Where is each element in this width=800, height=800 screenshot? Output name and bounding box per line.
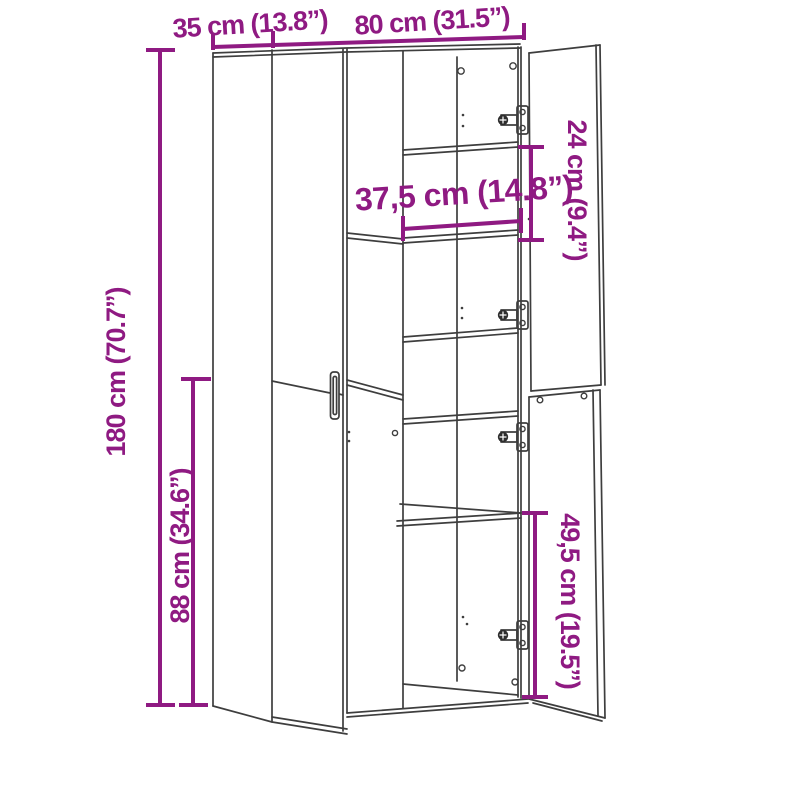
cabinet-line-art: [213, 44, 605, 734]
door-handle: [331, 372, 340, 419]
dimension-label-width: 80 cm (31.5”): [354, 1, 511, 40]
wardrobe-diagram-canvas: 35 cm (13.8”) 80 cm (31.5”) 180 cm (70.7…: [0, 0, 800, 800]
hinge-icon: [498, 621, 528, 649]
dimension-label-shelf-gap: 24 cm (9.4”): [562, 119, 592, 260]
hinge-icon: [498, 423, 528, 451]
dimension-label-lower-height: 88 cm (34.6”): [165, 468, 195, 623]
dimension-label-lower-section: 49,5 cm (19.5”): [555, 513, 585, 689]
fitting-holes: [348, 63, 587, 685]
dimension-left-lower: 88 cm (34.6”): [165, 379, 211, 705]
dimension-label-height: 180 cm (70.7”): [101, 287, 131, 456]
dimension-label-depth: 35 cm (13.8”): [172, 4, 329, 43]
dimension-lower-section: 49,5 cm (19.5”): [522, 513, 585, 697]
product-dimension-diagram: 35 cm (13.8”) 80 cm (31.5”) 180 cm (70.7…: [0, 0, 800, 800]
hinge-icon: [498, 106, 528, 134]
dimension-inner-width: 37,5 cm (14.8”): [354, 168, 574, 241]
dimension-top: 35 cm (13.8”) 80 cm (31.5”): [172, 1, 524, 50]
dimension-label-inner-width: 37,5 cm (14.8”): [354, 168, 574, 217]
hinge-icon: [498, 301, 528, 329]
dimension-left-height: 180 cm (70.7”): [101, 50, 175, 705]
cabinet-base: [213, 699, 528, 734]
